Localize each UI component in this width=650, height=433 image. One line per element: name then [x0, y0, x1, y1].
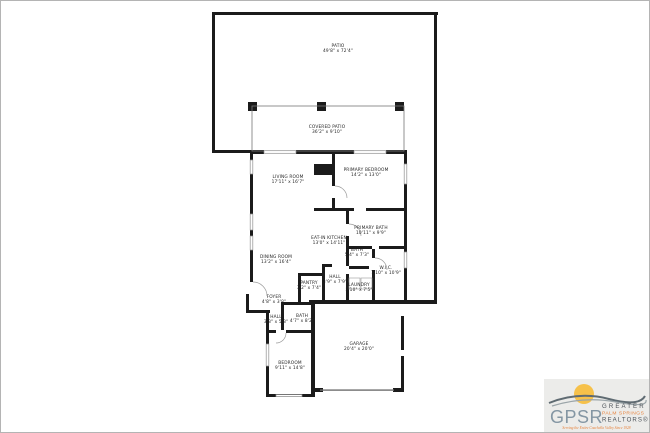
room-label-eat-in-kitchen: EAT-IN KITCHEN13'0" x 14'11" — [311, 235, 347, 246]
room-label-foyer: FOYER4'8" x 3'8" — [262, 294, 286, 305]
gpsr-acronym: GPSR — [550, 407, 603, 427]
floor-plan-svg: PATIO49'8" x 72'4"COVERED PATIO36'2" x 9… — [0, 0, 650, 433]
room-label-primary-bath: PRIMARY BATH10'11" x 9'9" — [354, 225, 387, 236]
room-label-primary-bedroom: PRIMARY BEDROOM14'2" x 13'0" — [344, 167, 389, 178]
logo-line-greater: GREATER — [602, 403, 646, 410]
logo-line-realtors: REALTORS® — [602, 417, 649, 424]
walls — [212, 12, 438, 397]
room-label-bath: BATH4'7" x 8'2" — [290, 313, 314, 324]
room-label-laundry: LAUNDRY5'10" x 7'5" — [345, 282, 372, 293]
room-label-pantry: PANTRY3'2" x 7'4" — [297, 280, 321, 291]
room-label-living-room: LIVING ROOM17'11" x 16'7" — [272, 174, 305, 185]
room-label-dining-room: DINING ROOM13'2" x 16'4" — [260, 254, 292, 265]
room-label-garage: GARAGE20'4" x 20'0" — [344, 341, 374, 352]
room-label-hall: HALL3'9" x 7'9" — [323, 274, 347, 285]
room-label-patio: PATIO49'8" x 72'4" — [323, 43, 353, 54]
gpsr-logo: GPSR GREATER PALM SPRINGS REALTORS® Serv… — [544, 379, 649, 432]
room-label-covered-patio: COVERED PATIO36'2" x 9'10" — [309, 124, 346, 135]
garage-door-line — [320, 389, 394, 390]
room-label-bedroom: BEDROOM9'11" x 14'8" — [275, 360, 305, 371]
room-label-w-i-c-: W.I.C.7'10" x 10'9" — [371, 265, 401, 276]
logo-tagline: Serving the Entire Coachella Valley Sinc… — [562, 426, 630, 430]
room-labels: PATIO49'8" x 72'4"COVERED PATIO36'2" x 9… — [260, 43, 401, 371]
floor-plan-screenshot: PATIO49'8" x 72'4"COVERED PATIO36'2" x 9… — [0, 0, 650, 433]
